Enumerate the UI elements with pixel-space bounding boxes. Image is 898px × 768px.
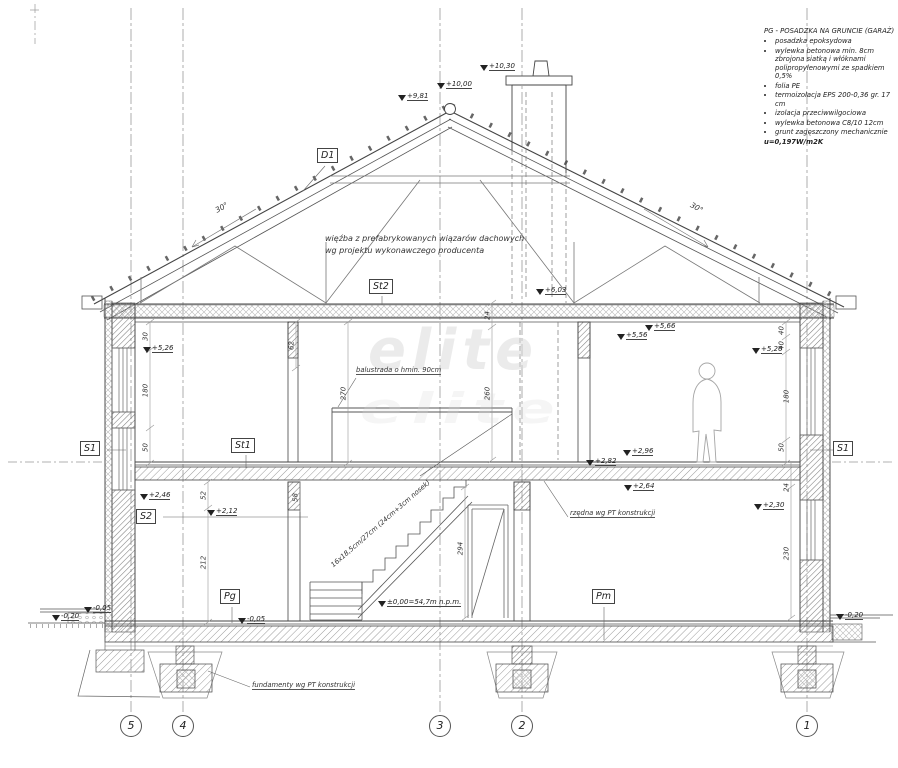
dimension-text: 24: [484, 303, 493, 329]
label-s2: S2: [136, 509, 156, 524]
balustrade: [332, 408, 512, 476]
elevation-mark: +2,82: [586, 457, 616, 466]
datum-mark: ±0,00=54,7m n.p.m.: [378, 598, 461, 607]
dimension-text: 230: [783, 541, 792, 567]
elevation-triangle-icon: [398, 95, 406, 101]
elevation-mark: +2,46: [140, 491, 170, 500]
elevation-triangle-icon: [536, 289, 544, 295]
legend-block: PG - POSADZKA NA GRUNCIE (GARAŻ) posadzk…: [764, 27, 896, 146]
dimension-text: 40: [778, 333, 787, 359]
elevation-triangle-icon: [52, 615, 60, 621]
elevation-triangle-icon: [238, 618, 246, 624]
elevation-mark: +5,66: [645, 322, 675, 331]
elevation-mark: +10,00: [437, 80, 472, 89]
legend-item: posadzka epoksydowa: [775, 37, 896, 45]
elevation-triangle-icon: [140, 494, 148, 500]
elevation-triangle-icon: [378, 601, 386, 607]
elevation-triangle-icon: [754, 504, 762, 510]
dimension-text: 62: [288, 333, 297, 359]
grid-bubble: 1: [796, 715, 818, 737]
legend-item: wylewka betonowa min. 8cm zbrojona siatk…: [775, 47, 896, 81]
elevation-mark: -0,05: [84, 604, 111, 613]
truss-note-line2: wg projektu wykonawczego producenta: [325, 246, 484, 255]
elevation-triangle-icon: [437, 83, 445, 89]
first-floor-slab: [135, 462, 800, 480]
elevation-mark: +9,81: [398, 92, 428, 101]
elevation-mark: +5,56: [617, 331, 647, 340]
truss-note-line1: więźba z prefabrykowanych wiązarów dacho…: [325, 234, 524, 243]
elevation-mark: +2,30: [754, 501, 784, 510]
roof: [82, 104, 856, 321]
elevation-triangle-icon: [624, 485, 632, 491]
grid-bubble: 5: [120, 715, 142, 737]
dimension-text: 50: [142, 435, 151, 461]
dimension-text: 50: [778, 435, 787, 461]
section-drawing-sheet: PG - POSADZKA NA GRUNCIE (GARAŻ) posadzk…: [0, 0, 898, 768]
elevation-triangle-icon: [586, 460, 594, 466]
label-s1-right: S1: [833, 441, 853, 456]
dimension-text: 180: [142, 378, 151, 404]
elevation-triangle-icon: [617, 334, 625, 340]
door-frame: [468, 505, 508, 618]
leader-lines: [107, 166, 834, 687]
dimension-text: 270: [340, 381, 349, 407]
balustrade-note: balustrada o hmin. 90cm: [356, 366, 441, 375]
elevation-mark: +2,96: [623, 447, 653, 456]
elevation-mark: +10,30: [480, 62, 515, 71]
label-pg: Pg: [220, 589, 240, 604]
dimension-text: 260: [484, 381, 493, 407]
elevation-mark: +2,64: [624, 482, 654, 491]
attic-ceiling: [104, 304, 834, 322]
label-d1: D1: [317, 148, 338, 163]
label-pm: Pm: [592, 589, 615, 604]
u-value: u=0,197W/m2K: [764, 138, 896, 146]
legend-list: posadzka epoksydowa wylewka betonowa min…: [775, 37, 896, 136]
grid-bubble: 2: [511, 715, 533, 737]
elevation-triangle-icon: [836, 614, 844, 620]
elevation-mark: -0,20: [836, 611, 863, 620]
dimension-text: 52: [200, 483, 209, 509]
legend-item: termoizolacja EPS 200-0,36 gr. 17 cm: [775, 91, 896, 108]
elevation-mark: -0,05: [238, 615, 265, 624]
label-s1-left: S1: [80, 441, 100, 456]
ground-slab: [105, 621, 833, 646]
dimension-text: 24: [783, 475, 792, 501]
slab-note: rzędna wg PT konstrukcji: [570, 509, 655, 518]
left-wall: [105, 298, 135, 632]
dimension-text: 58: [292, 485, 301, 511]
elevation-triangle-icon: [623, 450, 631, 456]
legend-item: grunt zagęszczony mechanicznie: [775, 128, 896, 136]
grid-bubble: 3: [429, 715, 451, 737]
foundation-note: fundamenty wg PT konstrukcji: [252, 681, 355, 690]
chimney: [506, 61, 572, 460]
elevation-mark: -0,20: [52, 612, 79, 621]
grid-bubble: 4: [172, 715, 194, 737]
dimension-text: 30: [142, 324, 151, 350]
label-st1: St1: [231, 438, 255, 453]
dimension-text: 212: [200, 550, 209, 576]
legend-title: PG - POSADZKA NA GRUNCIE (GARAŻ): [764, 27, 896, 35]
elevation-triangle-icon: [480, 65, 488, 71]
grid-axis-lines: [131, 8, 807, 712]
elevation-mark: +2,12: [207, 507, 237, 516]
legend-item: folia PE: [775, 82, 896, 90]
dimension-text: 294: [457, 536, 466, 562]
elevation-triangle-icon: [84, 607, 92, 613]
person-silhouette: [693, 363, 721, 462]
elevation-triangle-icon: [752, 348, 760, 354]
right-wall: [800, 298, 830, 632]
dimension-text: 180: [783, 384, 792, 410]
legend-item: izolacja przeciwwilgociowa: [775, 109, 896, 117]
label-st2: St2: [369, 279, 393, 294]
legend-item: wylewka betonowa C8/10 12cm: [775, 119, 896, 127]
elevation-triangle-icon: [207, 510, 215, 516]
elevation-mark: +6,03: [536, 286, 566, 295]
